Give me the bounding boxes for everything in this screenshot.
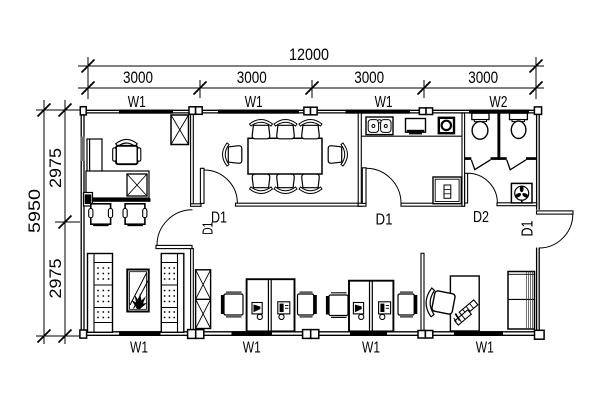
- svg-text:W1: W1: [128, 94, 146, 111]
- svg-text:D2: D2: [473, 209, 489, 226]
- svg-text:W1: W1: [130, 339, 148, 356]
- svg-text:5950: 5950: [25, 189, 44, 233]
- svg-text:W1: W1: [476, 339, 494, 356]
- svg-text:3000: 3000: [354, 68, 384, 87]
- svg-text:3000: 3000: [468, 68, 498, 87]
- svg-text:D1: D1: [376, 212, 393, 229]
- svg-text:2975: 2975: [46, 259, 65, 299]
- svg-text:W1: W1: [245, 94, 263, 111]
- svg-text:2975: 2975: [46, 148, 65, 188]
- svg-text:D1: D1: [520, 220, 537, 236]
- svg-text:3000: 3000: [123, 68, 153, 87]
- svg-text:W2: W2: [489, 94, 507, 111]
- svg-text:W1: W1: [243, 339, 261, 356]
- svg-text:D1: D1: [211, 210, 227, 227]
- svg-text:12000: 12000: [289, 45, 329, 64]
- svg-text:3000: 3000: [237, 68, 267, 87]
- svg-text:W1: W1: [362, 339, 380, 356]
- svg-text:W1: W1: [375, 94, 393, 111]
